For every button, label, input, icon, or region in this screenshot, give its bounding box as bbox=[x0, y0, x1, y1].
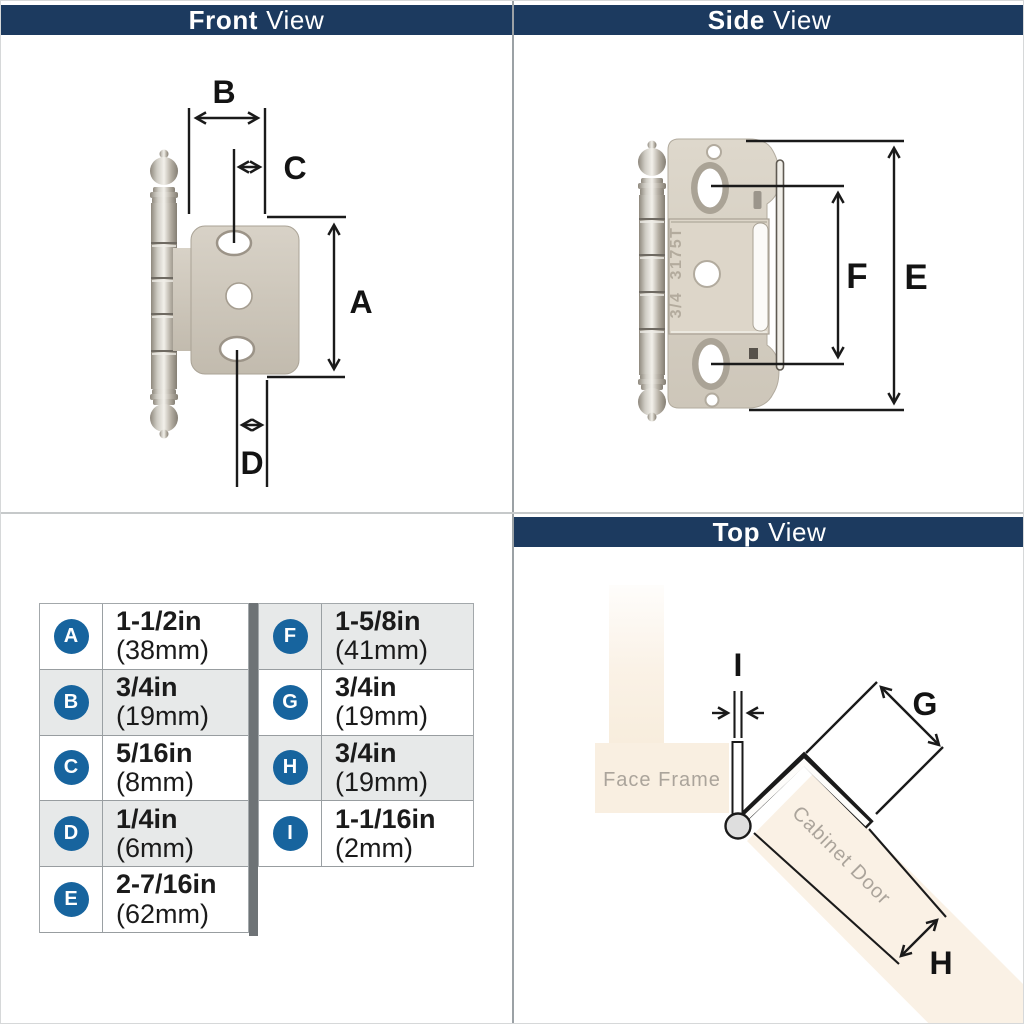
dim-letter-badge: F bbox=[273, 619, 308, 654]
dim-letter-badge: G bbox=[273, 685, 308, 720]
screw-slot-top bbox=[698, 169, 723, 208]
dim-value: 1-1/16in bbox=[335, 805, 473, 834]
door-leaf-edge bbox=[777, 160, 784, 370]
spring-tip bbox=[749, 348, 758, 359]
face-frame: Face Frame bbox=[595, 585, 729, 813]
spring-pin bbox=[754, 191, 762, 209]
side-view-header: Side View bbox=[514, 5, 1024, 35]
screw-hole-center bbox=[694, 261, 720, 287]
dim-label-d: D bbox=[240, 445, 263, 481]
pilot-hole-top bbox=[707, 145, 721, 159]
hinge-barrel-side bbox=[638, 141, 666, 422]
dim-metric: (41mm) bbox=[335, 636, 473, 665]
cabinet-door: Cabinet Door bbox=[747, 774, 1024, 1024]
dim-metric: (6mm) bbox=[116, 834, 248, 863]
dim-metric: (19mm) bbox=[335, 702, 473, 731]
header-title-light: View bbox=[768, 517, 826, 548]
table-row: G 3/4in(19mm) bbox=[259, 670, 473, 736]
dim-letter-badge: E bbox=[54, 882, 89, 917]
stamp-part-number: 3175T bbox=[668, 227, 685, 280]
dim-metric: (19mm) bbox=[335, 768, 473, 797]
dim-metric: (62mm) bbox=[116, 900, 248, 929]
dim-letter-badge: I bbox=[273, 816, 308, 851]
dim-metric: (8mm) bbox=[116, 768, 248, 797]
dim-value: 2-7/16in bbox=[116, 870, 248, 899]
front-view-header: Front View bbox=[1, 5, 512, 35]
header-title-light: View bbox=[266, 5, 324, 36]
header-title-bold: Front bbox=[189, 5, 258, 36]
quadrant-divider-horizontal bbox=[1, 512, 1024, 514]
dim-letter-badge: D bbox=[54, 816, 89, 851]
dim-label-f: F bbox=[846, 257, 867, 296]
face-frame-label: Face Frame bbox=[603, 769, 721, 791]
table-row: A 1-1/2in(38mm) bbox=[40, 604, 248, 670]
dim-label-c: C bbox=[283, 150, 306, 186]
header-title-bold: Top bbox=[713, 517, 761, 548]
table-row: C 5/16in(8mm) bbox=[40, 736, 248, 802]
dim-letter-badge: C bbox=[54, 750, 89, 785]
hinge-plate-side: 3175T 3/4 bbox=[668, 139, 784, 408]
pilot-hole-bottom bbox=[706, 394, 719, 407]
header-title-light: View bbox=[773, 5, 831, 36]
dim-value: 5/16in bbox=[116, 739, 248, 768]
dim-value: 1-5/8in bbox=[335, 607, 473, 636]
top-view-header: Top View bbox=[514, 517, 1024, 547]
stamp-size: 3/4 bbox=[668, 292, 685, 319]
dim-value: 1/4in bbox=[116, 805, 248, 834]
dim-label-g: G bbox=[913, 686, 938, 722]
dim-letter-badge: B bbox=[54, 685, 89, 720]
screw-hole-center bbox=[226, 283, 252, 309]
dim-label-i: I bbox=[734, 647, 743, 683]
table-row: E 2-7/16in(62mm) bbox=[40, 867, 248, 933]
dimension-table-right-column: F 1-5/8in(41mm) G 3/4in(19mm) H 3/4in(19… bbox=[258, 603, 474, 867]
table-divider-bar bbox=[249, 603, 258, 936]
header-title-bold: Side bbox=[708, 5, 765, 36]
table-row: H 3/4in(19mm) bbox=[259, 736, 473, 802]
hinge-pivot bbox=[726, 814, 751, 839]
dim-value: 3/4in bbox=[335, 673, 473, 702]
door-gap bbox=[733, 691, 743, 826]
dimension-table-left-column: A 1-1/2in(38mm) B 3/4in(19mm) C 5/16in(8… bbox=[39, 603, 249, 933]
dim-value: 3/4in bbox=[335, 739, 473, 768]
dim-label-b: B bbox=[212, 74, 235, 110]
table-row: F 1-5/8in(41mm) bbox=[259, 604, 473, 670]
top-view-diagram: Face Frame Cabinet Door bbox=[513, 513, 1024, 1024]
side-view-diagram: 3175T 3/4 F E bbox=[513, 1, 1024, 513]
table-row: B 3/4in(19mm) bbox=[40, 670, 248, 736]
dim-label-e: E bbox=[904, 258, 927, 297]
table-row: I 1-1/16in(2mm) bbox=[259, 801, 473, 867]
dim-letter-badge: A bbox=[54, 619, 89, 654]
front-view-diagram: B C A D bbox=[1, 1, 513, 513]
dim-label-a: A bbox=[349, 284, 372, 320]
dimension-table: A 1-1/2in(38mm) B 3/4in(19mm) C 5/16in(8… bbox=[39, 603, 474, 936]
dim-metric: (38mm) bbox=[116, 636, 248, 665]
dim-value: 3/4in bbox=[116, 673, 248, 702]
table-row: D 1/4in(6mm) bbox=[40, 801, 248, 867]
dim-value: 1-1/2in bbox=[116, 607, 248, 636]
dim-letter-badge: H bbox=[273, 750, 308, 785]
dim-metric: (19mm) bbox=[116, 702, 248, 731]
dim-label-h: H bbox=[929, 945, 952, 981]
adjustment-slot bbox=[753, 223, 768, 331]
dim-metric: (2mm) bbox=[335, 834, 473, 863]
hinge-dimension-sheet: B C A D bbox=[0, 0, 1024, 1024]
